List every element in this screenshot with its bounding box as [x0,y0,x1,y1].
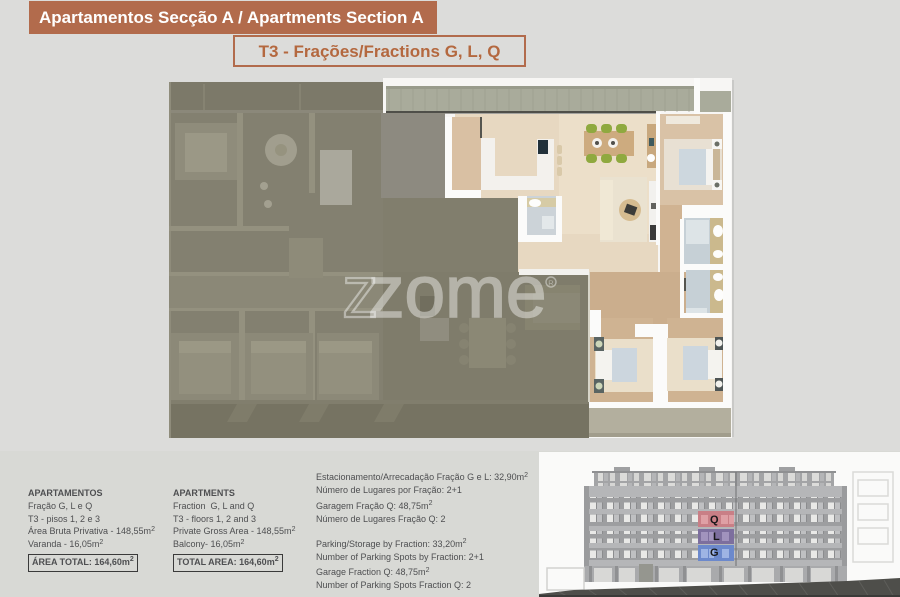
svg-text:R: R [548,279,554,288]
svg-text:L: L [713,531,720,543]
svg-text:Q: Q [710,514,719,526]
svg-text:G: G [710,547,719,559]
svg-text:zome: zome [368,252,547,333]
